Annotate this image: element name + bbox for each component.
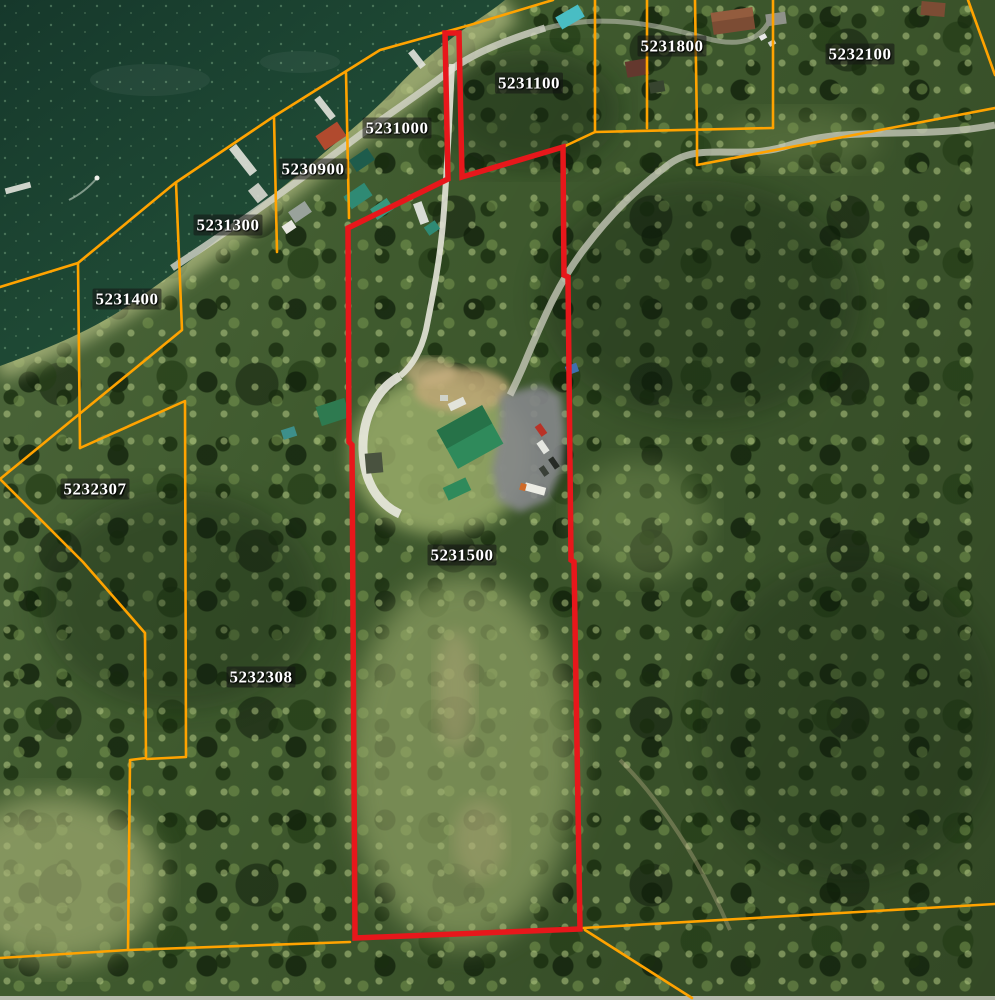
boat-icon <box>95 176 100 181</box>
building <box>282 220 297 234</box>
meadow <box>0 795 160 965</box>
parcel-label: 5232307 <box>61 479 130 500</box>
rv <box>413 201 429 225</box>
parcel-label: 5230900 <box>279 159 348 180</box>
dirt-patch <box>454 800 506 880</box>
water-glint <box>90 64 210 96</box>
asphalt-area <box>492 385 565 512</box>
parcel-boundary-line <box>583 904 995 928</box>
parcel-label: 5231100 <box>495 73 563 94</box>
forest-light-patch <box>570 460 710 580</box>
parcel-label: 5232308 <box>227 667 296 688</box>
parcel-label: 5231300 <box>194 215 263 236</box>
building <box>281 426 297 440</box>
building <box>765 12 786 27</box>
building <box>649 80 666 93</box>
building <box>316 398 351 426</box>
parcel-label: 5231400 <box>93 289 162 310</box>
meadow <box>347 575 577 945</box>
building <box>920 1 945 17</box>
dirt-patch <box>435 630 475 750</box>
parcel-boundary-line <box>968 0 995 75</box>
building <box>288 201 312 223</box>
parcel-label: 5231800 <box>638 36 707 57</box>
forest-shadow <box>540 180 860 420</box>
bottom-road-strip <box>0 996 995 1000</box>
map-graphics <box>0 0 995 1000</box>
building <box>625 58 649 78</box>
forest-shadow <box>440 50 620 170</box>
parcel-label: 5232100 <box>826 44 895 65</box>
water-glint <box>260 51 340 73</box>
parcel-label: 5231000 <box>363 118 432 139</box>
building <box>365 452 384 473</box>
parcel-label-selected: 5231500 <box>428 545 497 566</box>
trailer <box>440 395 448 401</box>
parcel-boundary-line <box>585 930 692 998</box>
map-viewport: 5231000 5230900 5231100 5231800 5232100 … <box>0 0 995 1000</box>
forest-shadow <box>700 560 995 880</box>
